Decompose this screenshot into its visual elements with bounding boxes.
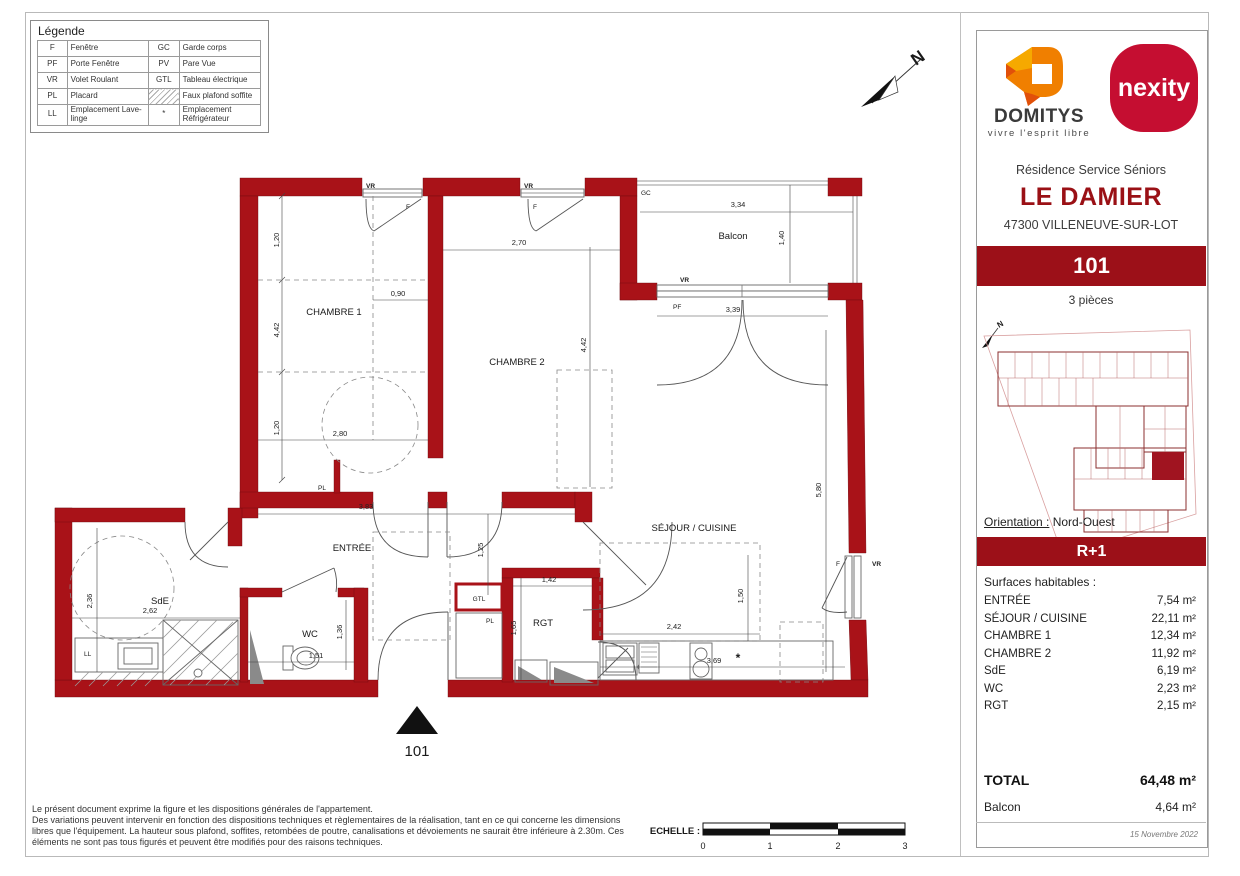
legend-row: PL Placard Faux plafond soffite [38,89,261,105]
domitys-wordmark: DOMITYS [980,106,1098,128]
surface-area: 6,19 m² [1157,665,1196,683]
legend-label: Fenêtre [67,41,148,57]
tag-vr-3: VR [680,277,689,284]
scale-tick-2: 2 [835,841,840,851]
svg-text:4,42: 4,42 [579,338,588,353]
svg-text:2,36: 2,36 [85,594,94,609]
north-arrow-icon: N [861,47,928,107]
surface-name: ENTRÉE [984,595,1031,613]
legend-label: Tableau électrique [179,73,260,89]
scale-tick-3: 3 [902,841,907,851]
svg-text:3,69: 3,69 [707,656,722,665]
surface-row: WC 2,23 m² [984,683,1196,701]
surface-name: WC [984,683,1003,701]
legend-abbr: PL [38,89,68,105]
north-label: N [907,47,928,70]
surfaces-table: ENTRÉE 7,54 m² SÉJOUR / CUISINE 22,11 m²… [984,595,1196,718]
room-label-gtl: GTL [473,596,486,603]
highlighted-unit [1152,452,1184,480]
surface-name: CHAMBRE 2 [984,648,1051,666]
svg-text:1,25: 1,25 [476,543,485,558]
svg-text:0,90: 0,90 [391,289,406,298]
total-area: 64,48 m² [1140,772,1196,788]
svg-text:1,50: 1,50 [736,589,745,604]
surface-area: 22,11 m² [1151,613,1196,631]
room-label-chambre2: CHAMBRE 2 [489,357,544,368]
legend-abbr [148,89,179,105]
residence-address: 47300 VILLENEUVE-SUR-LOT [978,218,1204,232]
surface-name: SdE [984,665,1006,683]
residence-type: Résidence Service Séniors [978,163,1204,177]
floor-plan: N [25,12,960,856]
legend-title: Légende [31,21,268,40]
tag-f-1: F [406,204,410,211]
legend-abbr: PF [38,57,68,73]
legend-row: PF Porte Fenêtre PV Pare Vue [38,57,261,73]
balcony-label: Balcon [984,800,1021,814]
legend-abbr: * [148,105,179,126]
legend-label: Garde corps [179,41,260,57]
total-row: TOTAL 64,48 m² [984,772,1196,788]
legend-row: F Fenêtre GC Garde corps [38,41,261,57]
tag-vr-1: VR [366,183,375,190]
legend-label: Faux plafond soffite [179,89,260,105]
rooms-count: 3 pièces [978,293,1204,307]
legend-row: LL Emplacement Lave-linge * Emplacement … [38,105,261,126]
tag-f-2: F [533,204,537,211]
surface-area: 2,23 m² [1157,683,1196,701]
surface-name: CHAMBRE 1 [984,630,1051,648]
svg-text:3,39: 3,39 [726,305,741,314]
placard-box [456,613,502,678]
shower [163,620,238,685]
footer-line: Le présent document exprime la figure et… [32,804,652,815]
legend-label: Emplacement Lave-linge [67,105,148,126]
residence-name: LE DAMIER [978,183,1204,212]
svg-text:2,42: 2,42 [667,622,682,631]
sheet-divider [960,12,961,856]
surface-row: ENTRÉE 7,54 m² [984,595,1196,613]
room-label-chambre1: CHAMBRE 1 [306,307,361,318]
legend-row: VR Volet Roulant GTL Tableau électrique [38,73,261,89]
surfaces-title: Surfaces habitables : [984,575,1096,589]
footer-notes: Le présent document exprime la figure et… [32,804,652,848]
scale-tick-1: 1 [767,841,772,851]
surface-name: RGT [984,700,1008,718]
svg-text:1,20: 1,20 [272,233,281,248]
tag-vr-4: VR [872,561,881,568]
room-label-entree: ENTRÉE [333,543,372,554]
orientation: Orientation : Nord-Ouest [984,515,1115,529]
balcony-row: Balcon 4,64 m² [984,800,1196,814]
svg-text:1,40: 1,40 [777,231,786,246]
surface-area: 11,92 m² [1151,648,1196,666]
surface-name: SÉJOUR / CUISINE [984,613,1087,631]
orientation-label: Orientation : [984,515,1049,529]
legend-abbr: LL [38,105,68,126]
surface-area: 2,15 m² [1157,700,1196,718]
site-north-arrow-icon: N [982,319,1005,348]
date: 15 Novembre 2022 [990,830,1198,839]
total-label: TOTAL [984,772,1029,788]
tag-f-3: F [836,561,840,568]
legend-label: Volet Roulant [67,73,148,89]
svg-text:N: N [996,319,1006,330]
date-divider [976,822,1206,823]
tag-gc: GC [641,190,651,197]
legend-label: Porte Fenêtre [67,57,148,73]
tag-pf: PF [673,304,681,311]
floor-banner: R+1 [977,537,1206,566]
building-rooms [998,352,1188,532]
surface-row: CHAMBRE 1 12,34 m² [984,630,1196,648]
room-label-sde: SdE [151,596,169,607]
room-label-balcon: Balcon [718,231,747,242]
unit-marker-label: 101 [404,743,429,760]
room-label-sejour: SÉJOUR / CUISINE [652,523,737,534]
legend-label: Emplacement Réfrigérateur [179,105,260,126]
svg-text:3,83: 3,83 [359,502,374,511]
svg-text:4,42: 4,42 [272,323,281,338]
surface-row: SÉJOUR / CUISINE 22,11 m² [984,613,1196,631]
svg-text:1,20: 1,20 [272,421,281,436]
tag-pl-1: PL [318,485,326,492]
footer-line: Des variations peuvent intervenir en fon… [32,815,652,826]
svg-text:1,51: 1,51 [309,651,324,660]
legend-label: Pare Vue [179,57,260,73]
footer-line: libres que l'équipement. La hauteur sous… [32,826,652,837]
legend-abbr: F [38,41,68,57]
surface-row: RGT 2,15 m² [984,700,1196,718]
domitys-logo-icon [1002,44,1066,106]
room-label-wc: WC [302,629,318,640]
surface-area: 7,54 m² [1157,595,1196,613]
plan-sheet: Légende F Fenêtre GC Garde corps PF Port… [0,0,1240,876]
legend-abbr: GTL [148,73,179,89]
domitys-tagline: vivre l'esprit libre [980,128,1098,139]
svg-text:2,62: 2,62 [143,606,158,615]
entrance-marker: 101 [396,706,438,760]
svg-text:1,42: 1,42 [542,575,557,584]
legend-table: F Fenêtre GC Garde corps PF Porte Fenêtr… [37,40,261,126]
unit-number-banner: 101 [977,246,1206,286]
room-label-rgt: RGT [533,618,553,629]
svg-text:5,80: 5,80 [814,483,823,498]
legend-abbr: GC [148,41,179,57]
surface-row: CHAMBRE 2 11,92 m² [984,648,1196,666]
scale-tick-0: 0 [700,841,705,851]
svg-text:3,34: 3,34 [731,200,746,209]
svg-text:1,65: 1,65 [509,621,518,636]
svg-text:2,80: 2,80 [333,429,348,438]
nexity-logo-icon: nexity [1110,44,1198,132]
balcony-area: 4,64 m² [1155,800,1196,814]
svg-text:1,36: 1,36 [335,625,344,640]
legend-abbr: PV [148,57,179,73]
orientation-value: Nord-Ouest [1053,515,1115,529]
fridge-marker: * [736,651,741,665]
legend-abbr: VR [38,73,68,89]
footer-line: éléments ne sont pas tous figurés et peu… [32,837,652,848]
tag-pl-2: PL [486,618,494,625]
legend-label: Placard [67,89,148,105]
fixtures [75,584,833,686]
tag-vr-2: VR [524,183,533,190]
dashed-guides [70,196,823,682]
surface-row: SdE 6,19 m² [984,665,1196,683]
legend-box: Légende F Fenêtre GC Garde corps PF Port… [30,20,269,133]
nexity-wordmark: nexity [1118,74,1190,102]
walls [55,178,868,697]
scale-label: ECHELLE : [650,826,700,837]
svg-text:2,70: 2,70 [512,238,527,247]
tag-ll: LL [84,651,92,658]
scale-bar: ECHELLE : 0 1 2 3 [650,823,908,851]
surface-area: 12,34 m² [1151,630,1196,648]
